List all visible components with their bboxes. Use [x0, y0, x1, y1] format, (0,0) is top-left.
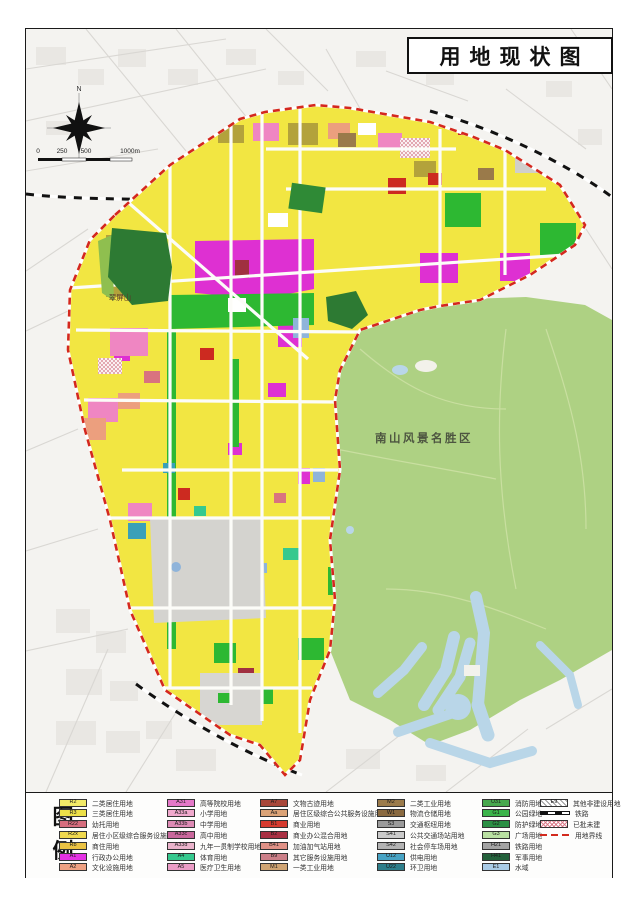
legend-label: 文物古迹用地 — [293, 798, 334, 808]
legend-code: U12 — [386, 853, 396, 860]
legend-item: A2文化设施用地 — [59, 863, 133, 872]
legend-code: A5 — [178, 864, 185, 871]
legend-item: A5医疗卫生用地 — [167, 863, 241, 872]
legend-swatch: G2 — [482, 820, 510, 828]
legend-label: 体育用地 — [200, 852, 227, 862]
legend-swatch: B1 — [260, 820, 288, 828]
hill-label: 翠屏山 — [109, 292, 132, 302]
legend-item: A33b中学用地 — [167, 820, 227, 829]
legend-swatch: A33b — [167, 820, 195, 828]
legend-label: 社会停车场用地 — [410, 841, 458, 851]
map-title-box: 用地现状图 — [407, 37, 613, 74]
legend-swatch: E1 — [482, 863, 510, 871]
legend-code: M1 — [270, 864, 278, 871]
legend-label: 公共交通场站用地 — [410, 830, 464, 840]
legend-swatch: G3 — [482, 831, 510, 839]
legend-item: B2商业办公混合用地 — [260, 830, 347, 839]
legend-swatch: R2x — [59, 831, 87, 839]
legend-label: 一类工业用地 — [293, 862, 334, 872]
legend-code: H41 — [491, 853, 501, 860]
legend-item: A33c高中用地 — [167, 830, 227, 839]
legend-swatch: R2 — [59, 799, 87, 807]
legend-label: 已批未建 — [573, 819, 600, 829]
legend-swatch: U31 — [482, 799, 510, 807]
legend-label: 医疗卫生用地 — [200, 862, 241, 872]
legend-label: 三类居住用地 — [92, 808, 133, 818]
legend-label: 中学用地 — [200, 819, 227, 829]
legend-item: S41公共交通场站用地 — [377, 830, 464, 839]
legend-item: A33d九年一贯制学校用地 — [167, 841, 261, 850]
legend-code: B9 — [271, 853, 278, 860]
legend-swatch: U22 — [377, 863, 405, 871]
legend-item: E1水域 — [482, 863, 529, 872]
map-area: 南山风景名胜区 翠屏山 N 0 250 500 1000m — [26, 29, 612, 792]
legend-label: 商住用地 — [92, 841, 119, 851]
legend-item: A33a小学用地 — [167, 809, 227, 818]
legend-item: B41加油加气站用地 — [260, 841, 341, 850]
legend-code: U22 — [386, 864, 396, 871]
legend-label: 九年一贯制学校用地 — [200, 841, 261, 851]
legend-label: 文化设施用地 — [92, 862, 133, 872]
legend-code: Rb — [69, 842, 76, 849]
legend-swatch: A5 — [167, 863, 195, 871]
legend-label: 其它服务设施用地 — [293, 852, 347, 862]
scale-label-1000m: 1000m — [120, 148, 140, 155]
legend-code: B1 — [271, 821, 278, 828]
legend-swatch: M2 — [377, 799, 405, 807]
legend-label: 其他非建设用地 — [573, 798, 621, 808]
legend-item: H41军事用地 — [482, 852, 542, 861]
legend-swatch: U12 — [377, 853, 405, 861]
legend-code: Aa — [271, 810, 278, 817]
legend-item: B9其它服务设施用地 — [260, 852, 347, 861]
legend-code: U31 — [491, 799, 501, 806]
legend-item: A4体育用地 — [167, 852, 227, 861]
compass-north-label: N — [76, 86, 81, 93]
legend-swatch: B9 — [260, 853, 288, 861]
legend-label: 高等院校用地 — [200, 798, 241, 808]
legend-item: W1物流仓储用地 — [377, 809, 451, 818]
legend-item: M1一类工业用地 — [260, 863, 334, 872]
legend-swatch — [540, 820, 568, 828]
legend-label: 环卫用地 — [410, 862, 437, 872]
legend-item: G1公园绿地 — [482, 809, 542, 818]
legend-swatch: W1 — [377, 809, 405, 817]
legend-swatch: A33d — [167, 842, 195, 850]
legend-swatch: M1 — [260, 863, 288, 871]
legend-label: 水域 — [515, 862, 529, 872]
legend-swatch: R3 — [59, 809, 87, 817]
legend-item: R22幼托用地 — [59, 820, 119, 829]
legend-item: R2二类居住用地 — [59, 798, 133, 807]
legend-code: S41 — [386, 831, 396, 838]
legend-code: A33d — [175, 842, 188, 849]
legend-swatch: B2 — [260, 831, 288, 839]
legend-code: S42 — [386, 842, 396, 849]
legend-item: G2防护绿地 — [482, 820, 542, 829]
legend-code: A31 — [176, 799, 186, 806]
legend-swatch: A2 — [59, 863, 87, 871]
legend-code: H21 — [491, 842, 501, 849]
legend-swatch: H41 — [482, 853, 510, 861]
legend-label: 加油加气站用地 — [293, 841, 341, 851]
legend-code: G3 — [492, 831, 499, 838]
legend-label: 公园绿地 — [515, 808, 542, 818]
legend-item: 用地界线 — [540, 830, 602, 839]
legend-label: 供电用地 — [410, 852, 437, 862]
legend-swatch: A1 — [59, 853, 87, 861]
scenic-clearing — [415, 360, 437, 372]
legend-label: 消防用地 — [515, 798, 542, 808]
legend-swatch: A31 — [167, 799, 195, 807]
legend-swatch: E9 — [540, 799, 568, 807]
legend-item: A31高等院校用地 — [167, 798, 241, 807]
legend-code: A4 — [178, 853, 185, 860]
legend-label: 二类工业用地 — [410, 798, 451, 808]
legend-item: R3三类居住用地 — [59, 809, 133, 818]
legend-item: 铁路 — [540, 809, 589, 818]
legend-item: 已批未建 — [540, 820, 600, 829]
map-sheet-frame: 南山风景名胜区 翠屏山 N 0 250 500 1000m 用地现状图 图 例 — [25, 28, 613, 878]
legend-item: A7文物古迹用地 — [260, 798, 334, 807]
legend-swatch — [540, 811, 570, 815]
legend-item: U12供电用地 — [377, 852, 437, 861]
scale-label-500: 500 — [81, 148, 92, 155]
legend-code: E9 — [551, 799, 558, 806]
legend: 图 例 R2二类居住用地R3三类居住用地R22幼托用地R2x居住小区级综合服务设… — [26, 792, 612, 878]
legend-label: 商业用地 — [293, 819, 320, 829]
legend-item: S42社会停车场用地 — [377, 841, 458, 850]
legend-swatch: B41 — [260, 842, 288, 850]
map-canvas: 南山风景名胜区 翠屏山 N 0 250 500 1000m — [26, 29, 612, 792]
legend-swatch: S3 — [377, 820, 405, 828]
legend-item: S3交通枢纽用地 — [377, 820, 451, 829]
legend-code: A33b — [175, 821, 188, 828]
legend-label: 高中用地 — [200, 830, 227, 840]
legend-code: R3 — [69, 810, 76, 817]
legend-code: G2 — [492, 821, 499, 828]
map-title: 用地现状图 — [431, 41, 590, 71]
legend-item: A1行政办公用地 — [59, 852, 133, 861]
legend-code: A33a — [175, 810, 188, 817]
legend-item: R2x居住小区级综合服务设施用地 — [59, 830, 180, 839]
legend-label: 小学用地 — [200, 808, 227, 818]
legend-label: 用地界线 — [575, 830, 602, 840]
legend-label: 铁路 — [575, 808, 589, 818]
legend-code: M2 — [387, 799, 395, 806]
legend-code: B2 — [271, 831, 278, 838]
legend-label: 二类居住用地 — [92, 798, 133, 808]
legend-swatch: S42 — [377, 842, 405, 850]
legend-code: R22 — [68, 821, 78, 828]
legend-swatch: A4 — [167, 853, 195, 861]
legend-item: E9其他非建设用地 — [540, 798, 621, 807]
legend-label: 广场用地 — [515, 830, 542, 840]
legend-label: 居住区级综合公共服务设施用地 — [293, 808, 388, 818]
legend-code: A33c — [175, 831, 188, 838]
legend-item: U22环卫用地 — [377, 863, 437, 872]
scenic-area-label: 南山风景名胜区 — [375, 431, 473, 445]
legend-label: 幼托用地 — [92, 819, 119, 829]
legend-swatch: Rb — [59, 842, 87, 850]
legend-code: B41 — [269, 842, 279, 849]
scale-label-0: 0 — [36, 148, 40, 155]
legend-swatch — [540, 834, 570, 837]
legend-item: Rb商住用地 — [59, 841, 119, 850]
legend-item: U31消防用地 — [482, 798, 542, 807]
legend-label: 物流仓储用地 — [410, 808, 451, 818]
legend-swatch: R22 — [59, 820, 87, 828]
legend-label: 商业办公混合用地 — [293, 830, 347, 840]
legend-swatch: A33c — [167, 831, 195, 839]
legend-code: W1 — [387, 810, 395, 817]
legend-item: H21铁路用地 — [482, 841, 542, 850]
scale-label-250: 250 — [57, 148, 68, 155]
legend-item: M2二类工业用地 — [377, 798, 451, 807]
legend-swatch: G1 — [482, 809, 510, 817]
legend-swatch: H21 — [482, 842, 510, 850]
legend-label: 交通枢纽用地 — [410, 819, 451, 829]
legend-label: 军事用地 — [515, 852, 542, 862]
legend-label: 防护绿地 — [515, 819, 542, 829]
legend-item: B1商业用地 — [260, 820, 320, 829]
legend-swatch: S41 — [377, 831, 405, 839]
legend-label: 铁路用地 — [515, 841, 542, 851]
legend-code: R2 — [69, 799, 76, 806]
legend-swatch: A33a — [167, 809, 195, 817]
legend-code: S3 — [388, 821, 395, 828]
legend-code: A1 — [70, 853, 77, 860]
legend-code: A2 — [70, 864, 77, 871]
legend-item: G3广场用地 — [482, 830, 542, 839]
legend-code: G1 — [492, 810, 499, 817]
legend-label: 行政办公用地 — [92, 852, 133, 862]
legend-code: R2x — [68, 831, 78, 838]
legend-code: E1 — [493, 864, 500, 871]
legend-swatch: Aa — [260, 809, 288, 817]
legend-item: Aa居住区级综合公共服务设施用地 — [260, 809, 388, 818]
legend-swatch: A7 — [260, 799, 288, 807]
legend-code: A7 — [271, 799, 278, 806]
